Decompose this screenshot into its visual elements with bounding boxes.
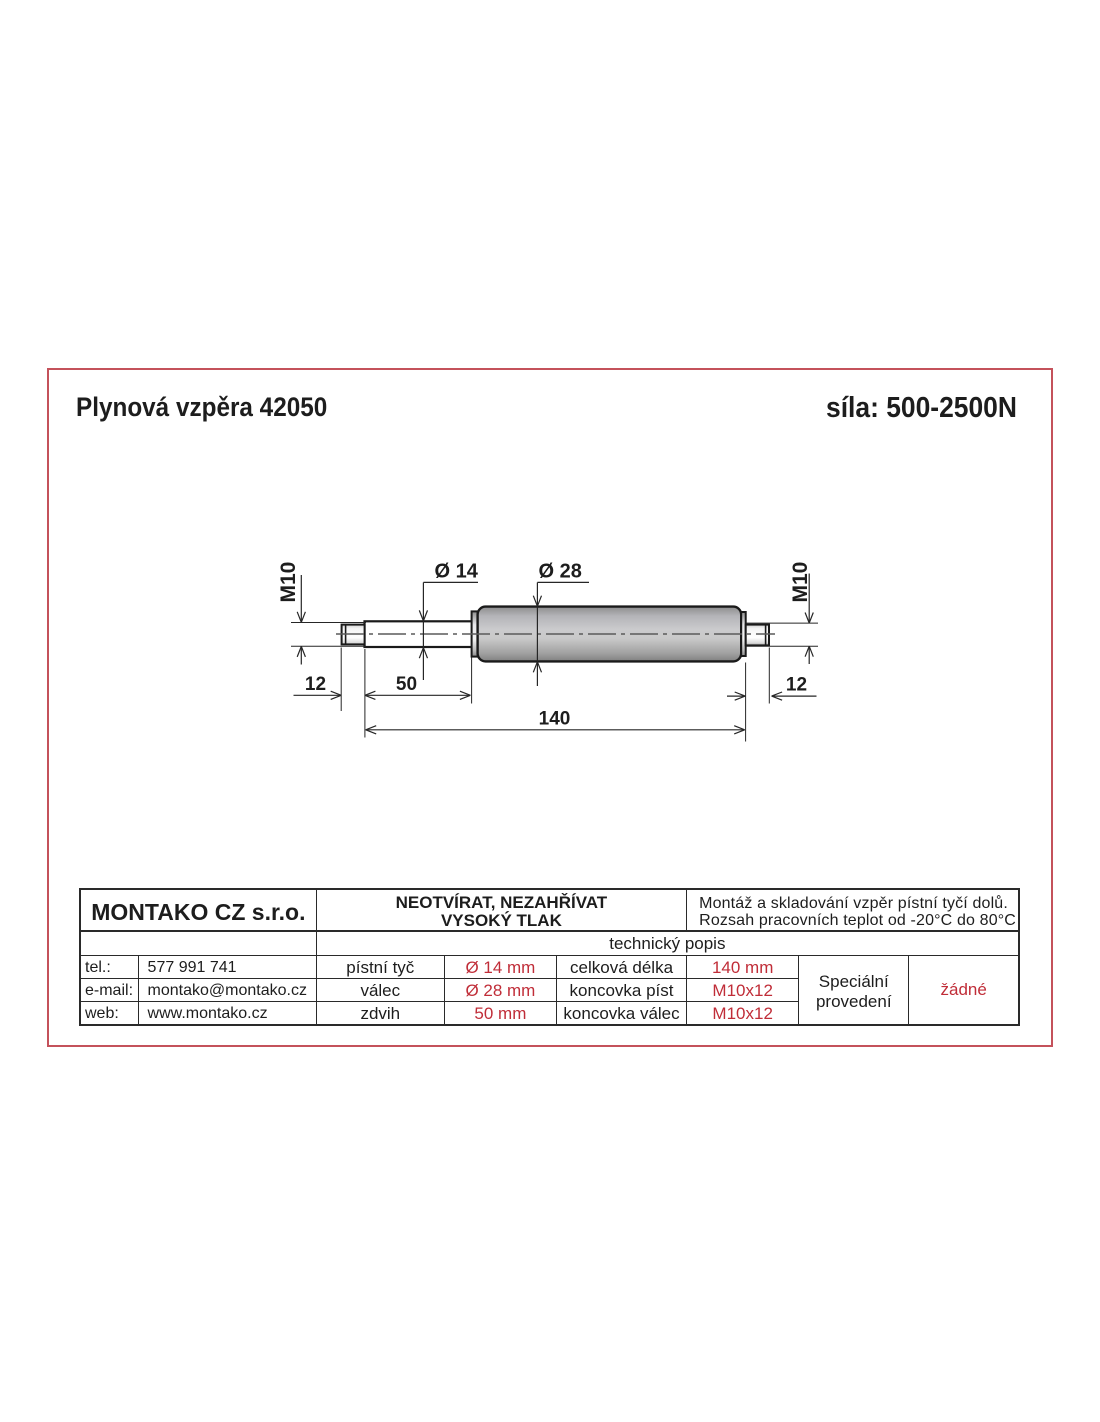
svg-text:12: 12 bbox=[786, 675, 807, 696]
svg-text:50: 50 bbox=[396, 674, 417, 695]
svg-text:M10: M10 bbox=[277, 562, 300, 603]
svg-text:140: 140 bbox=[539, 708, 571, 729]
svg-text:M10: M10 bbox=[789, 562, 812, 603]
svg-text:Ø 14: Ø 14 bbox=[435, 561, 479, 583]
svg-text:12: 12 bbox=[305, 674, 326, 695]
svg-text:Ø 28: Ø 28 bbox=[539, 561, 582, 583]
